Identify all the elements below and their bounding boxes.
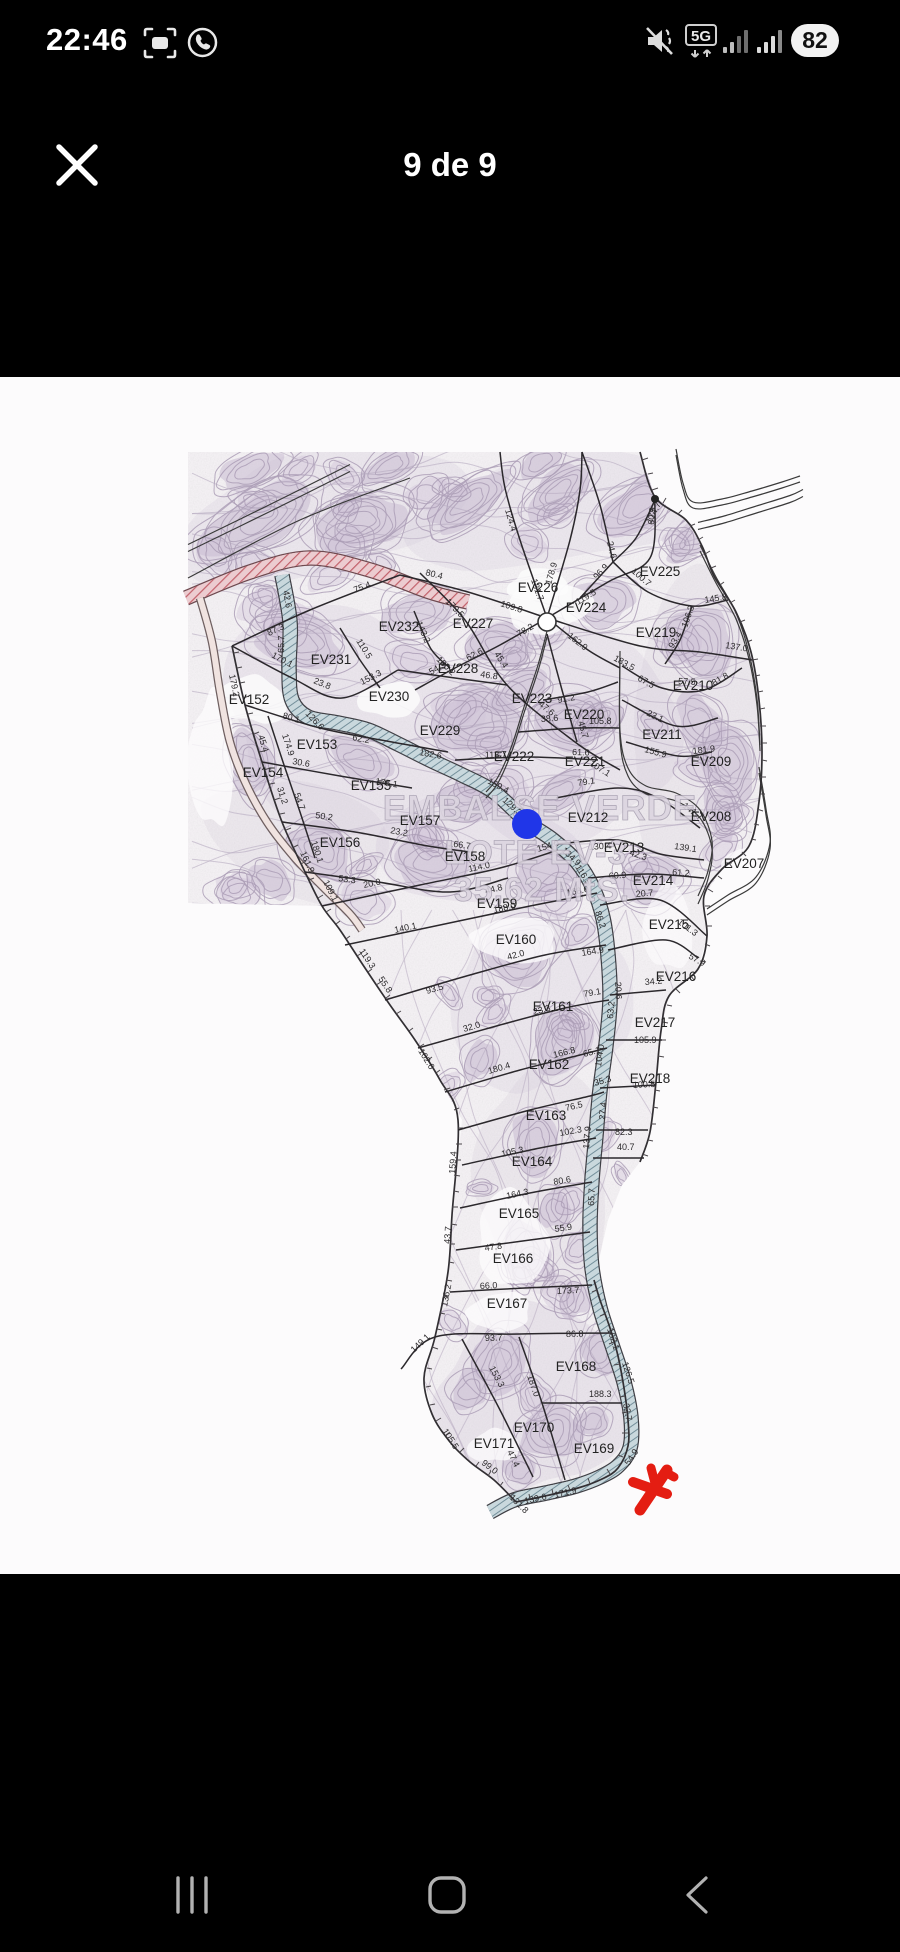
svg-text:5G: 5G: [691, 28, 711, 45]
svg-text:EV158: EV158: [445, 849, 486, 864]
svg-text:EV215: EV215: [649, 917, 690, 932]
svg-text:EV152: EV152: [229, 692, 270, 707]
svg-text:66.0: 66.0: [480, 1280, 498, 1291]
svg-text:EV157: EV157: [400, 813, 441, 828]
svg-text:63.2: 63.2: [605, 1001, 616, 1019]
svg-text:EV228: EV228: [438, 661, 479, 676]
svg-text:EV214: EV214: [633, 873, 674, 888]
svg-text:EV170: EV170: [514, 1420, 555, 1435]
svg-text:EV219: EV219: [636, 625, 677, 640]
svg-text:EV153: EV153: [297, 737, 338, 752]
svg-text:105.9: 105.9: [634, 1035, 657, 1045]
svg-text:EV209: EV209: [691, 754, 732, 769]
svg-text:EV225: EV225: [640, 564, 681, 579]
svg-text:20.6: 20.6: [613, 982, 624, 1000]
svg-text:EV207: EV207: [724, 856, 765, 871]
svg-text:65.7: 65.7: [276, 635, 286, 653]
svg-text:65.7: 65.7: [586, 1188, 597, 1206]
svg-text:EV163: EV163: [526, 1108, 567, 1123]
svg-text:EV224: EV224: [566, 600, 607, 615]
svg-text:EV212: EV212: [568, 810, 609, 825]
svg-text:137.9: 137.9: [581, 1126, 593, 1149]
svg-text:173.7: 173.7: [557, 1285, 580, 1296]
svg-text:EV155: EV155: [351, 778, 392, 793]
svg-text:EV161: EV161: [533, 999, 574, 1014]
svg-text:EV217: EV217: [635, 1015, 676, 1030]
svg-text:EV231: EV231: [311, 652, 352, 667]
svg-text:EV220: EV220: [564, 707, 605, 722]
svg-text:EV208: EV208: [691, 809, 732, 824]
svg-text:EV213: EV213: [604, 840, 645, 855]
svg-text:EV226: EV226: [518, 580, 559, 595]
svg-text:82.3: 82.3: [615, 1127, 633, 1137]
svg-text:188.3: 188.3: [589, 1389, 612, 1399]
svg-text:43.7: 43.7: [442, 1226, 453, 1244]
svg-text:EV160: EV160: [496, 932, 537, 947]
svg-text:40.7: 40.7: [617, 1142, 635, 1152]
svg-text:86.8: 86.8: [566, 1329, 584, 1339]
svg-text:38.6: 38.6: [540, 713, 558, 724]
svg-text:EV168: EV168: [556, 1359, 597, 1374]
svg-text:EV169: EV169: [574, 1441, 615, 1456]
svg-text:61.2: 61.2: [672, 867, 690, 878]
svg-text:EV159: EV159: [477, 896, 518, 911]
svg-text:EV171: EV171: [474, 1436, 515, 1451]
svg-text:EV216: EV216: [656, 969, 697, 984]
svg-text:27.4: 27.4: [597, 1102, 608, 1120]
svg-text:159.4: 159.4: [447, 1151, 459, 1174]
svg-text:20.7: 20.7: [635, 888, 653, 899]
svg-text:EV229: EV229: [420, 723, 461, 738]
svg-text:EV232: EV232: [379, 619, 420, 634]
svg-text:EV227: EV227: [453, 616, 494, 631]
svg-text:93.7: 93.7: [485, 1332, 503, 1343]
svg-text:EV164: EV164: [512, 1154, 553, 1169]
svg-text:EV166: EV166: [493, 1251, 534, 1266]
svg-text:EV167: EV167: [487, 1296, 528, 1311]
svg-text:EV211: EV211: [642, 727, 682, 742]
svg-text:EV156: EV156: [320, 835, 361, 850]
svg-text:60.9: 60.9: [646, 507, 657, 525]
svg-text:EV223: EV223: [512, 691, 553, 706]
svg-text:EV221: EV221: [565, 754, 606, 769]
svg-text:EV230: EV230: [369, 689, 410, 704]
svg-text:EV222: EV222: [494, 749, 535, 764]
svg-text:EV210: EV210: [673, 678, 714, 693]
svg-text:EV165: EV165: [499, 1206, 540, 1221]
svg-text:EV162: EV162: [529, 1057, 570, 1072]
svg-text:EV218: EV218: [630, 1071, 671, 1086]
svg-text:EV154: EV154: [243, 765, 284, 780]
